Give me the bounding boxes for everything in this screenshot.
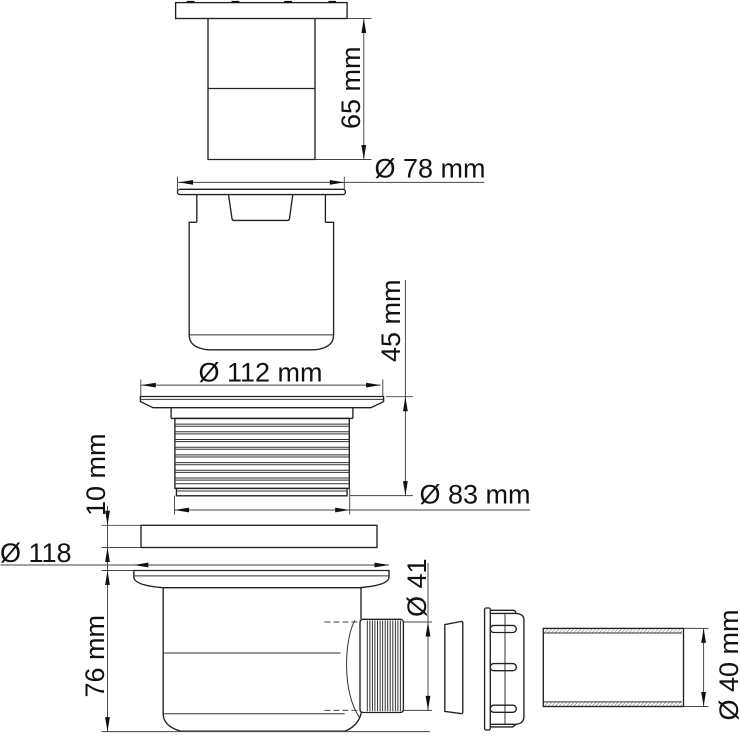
svg-text:Ø 112 mm: Ø 112 mm bbox=[199, 357, 323, 387]
svg-text:45 mm: 45 mm bbox=[376, 279, 406, 362]
svg-text:Ø 83 mm: Ø 83 mm bbox=[420, 480, 531, 510]
svg-text:Ø 118: Ø 118 bbox=[0, 538, 72, 568]
svg-text:76 mm: 76 mm bbox=[80, 615, 110, 698]
svg-text:Ø 41: Ø 41 bbox=[402, 558, 432, 617]
svg-text:Ø 78 mm: Ø 78 mm bbox=[375, 154, 486, 184]
svg-text:65 mm: 65 mm bbox=[336, 46, 366, 129]
svg-text:10 mm: 10 mm bbox=[81, 433, 111, 516]
svg-text:Ø 40 mm: Ø 40 mm bbox=[714, 609, 740, 720]
